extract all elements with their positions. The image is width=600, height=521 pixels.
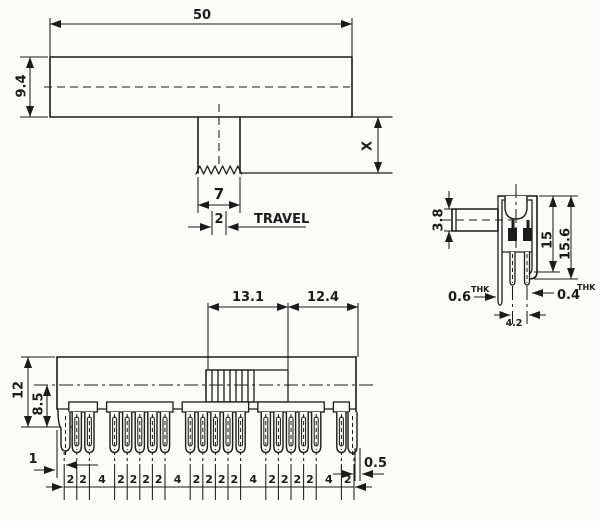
dim-label-right-offset: 0.5 [364, 456, 387, 471]
pin-group-tab [333, 402, 349, 412]
pin-spacing-label: 2 [268, 473, 276, 486]
travel-label: TRAVEL [254, 212, 309, 227]
bracket-thk-unit: THK [471, 285, 490, 294]
pin-spacing-label: 4 [325, 473, 333, 486]
pin-spacing-label: 2 [230, 473, 238, 486]
dim-label-width: 50 [193, 8, 211, 23]
pin-spacing-label: 2 [130, 473, 138, 486]
pin-spacing-label: 2 [306, 473, 314, 486]
technical-drawing-page: 50 9.4 X 7 2 TRAVEL [0, 0, 600, 521]
bracket-left-wall [498, 196, 502, 305]
dim-label-slider-left: 13.1 [232, 290, 264, 305]
pin-spacing-label: 2 [155, 473, 163, 486]
pin-spacing-label: 2 [67, 473, 75, 486]
slide-switch-drawing: 50 9.4 X 7 2 TRAVEL [0, 0, 600, 521]
dim-label-center-height: 8.5 [32, 392, 47, 415]
pin-spacing-label: 2 [193, 473, 201, 486]
pin-spacing-label: 2 [117, 473, 125, 486]
terminal-thk-unit: THK [577, 283, 596, 292]
pin-spacing-label: 2 [344, 473, 352, 486]
top-view: 50 9.4 X 7 2 TRAVEL [15, 8, 392, 235]
pin-spacing-label: 2 [218, 473, 226, 486]
mounting-lug-left [58, 409, 70, 451]
dim-label-height-outer: 15.6 [559, 228, 574, 260]
contact-stem [512, 220, 515, 228]
pin-spacing-label: 4 [98, 473, 106, 486]
contact-stem [527, 220, 530, 228]
lever-serration-break [196, 166, 242, 174]
dim-label-lever-thickness: 3.8 [432, 208, 447, 231]
pin-spacing-label: 2 [281, 473, 289, 486]
bracket-thk-value: 0.6 [448, 290, 471, 305]
pin-field: 2242222422224222242 [64, 402, 354, 500]
pin-spacing-label: 2 [293, 473, 301, 486]
travel-value: 2 [214, 212, 223, 227]
pin-spacing-label: 4 [174, 473, 182, 486]
dim-label-left-offset: 1 [28, 452, 37, 467]
pin-spacing-label: 4 [249, 473, 257, 486]
bottom-view: 13.1 12.4 12 8.5 2242222422224222242 1 0… [12, 290, 387, 500]
contact-block [508, 228, 517, 241]
pin-group-tab [107, 402, 173, 412]
pin-spacing-label: 2 [142, 473, 150, 486]
dim-label-terminal-span: 4.2 [506, 318, 523, 329]
pin-spacing-label: 2 [205, 473, 213, 486]
pin-group-tab [69, 402, 98, 412]
dim-label-lever-height: X [361, 141, 376, 151]
dim-label-height-inner: 15 [541, 231, 556, 249]
contact-block [523, 228, 532, 241]
side-view: 3.8 0.6 THK 0.4 THK 4.2 [432, 184, 597, 329]
pin-group-tab [258, 402, 324, 412]
pin-group-tab [182, 402, 248, 412]
dim-label-body-height: 12 [12, 381, 27, 399]
dim-label-lever-width: 7 [214, 185, 224, 203]
pin-spacing-label: 2 [79, 473, 87, 486]
dim-label-height: 9.4 [15, 74, 30, 97]
dim-label-slider-right: 12.4 [307, 290, 339, 305]
